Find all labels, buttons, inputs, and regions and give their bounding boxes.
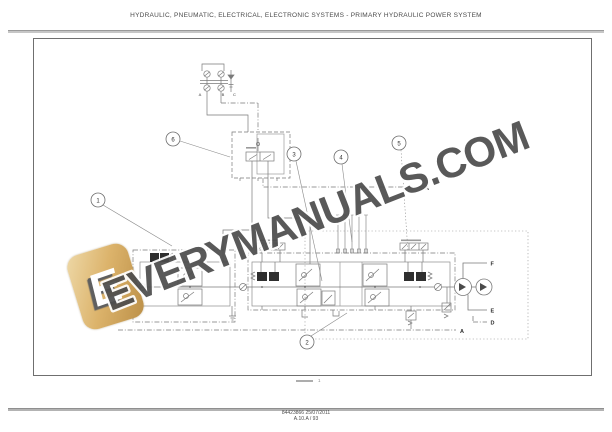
callout-5: 5 — [392, 136, 408, 252]
port-label-a: A — [199, 92, 202, 97]
line-label-e: E — [491, 309, 495, 315]
outlet-port-labels: F E D — [491, 262, 495, 327]
manual-page: HYDRAULIC, PNEUMATIC, ELECTRICAL, ELECTR… — [0, 0, 612, 432]
pilot-line-bundle — [336, 215, 368, 253]
line-label-a-mid: A — [425, 186, 429, 192]
hydraulic-schematic: A B C A — [0, 0, 612, 432]
line-label-f: F — [491, 262, 495, 268]
line-label-d: D — [491, 321, 495, 327]
callout-3: 3 — [287, 147, 322, 281]
dotted-enclosure — [305, 231, 528, 339]
pump-symbols — [455, 263, 493, 322]
footer-page-number: A.10.A / 93 — [0, 417, 612, 423]
drawing-ref-sheet: 1 — [318, 378, 321, 383]
main-valve-block — [126, 240, 455, 330]
callout-6: 6 — [166, 132, 230, 157]
pilot-plumbing — [223, 178, 421, 264]
drawing-ref: 1 — [296, 378, 336, 383]
callout-1: 1 — [91, 193, 172, 246]
footer: 84423866 25/07/2011 A.10.A / 93 — [0, 411, 612, 422]
line-label-a-bottom: A — [460, 329, 464, 335]
callout-2: 2 — [300, 313, 347, 349]
callout-4: 4 — [334, 150, 352, 242]
port-label-c: C — [233, 92, 236, 97]
inlet-check-valve-cluster — [200, 64, 258, 132]
drawing-ref-smudge — [296, 380, 313, 382]
inlet-port-labels: A B C — [199, 92, 236, 97]
port-label-b: B — [222, 92, 225, 97]
callouts: 1 2 3 4 5 — [91, 132, 408, 349]
watermark-logo-letter: E — [85, 259, 125, 314]
pilot-valve-box — [232, 132, 290, 181]
